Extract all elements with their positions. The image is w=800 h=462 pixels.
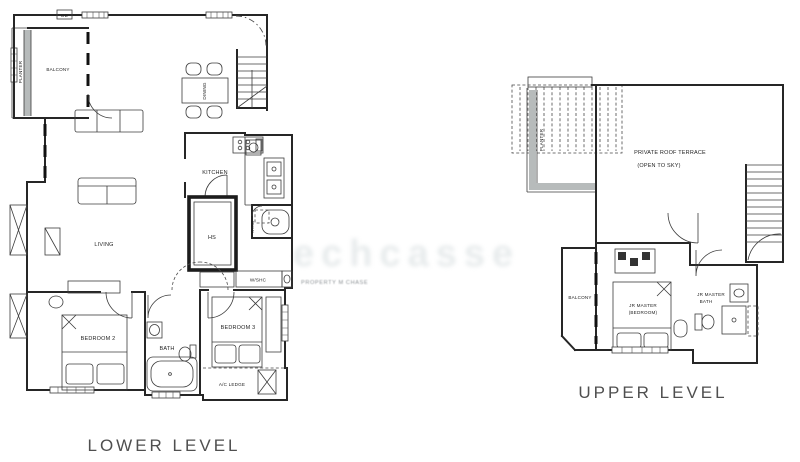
room-label-jrmaster-2: (BEDROOM) bbox=[629, 310, 658, 315]
room-label-dining: DINING bbox=[202, 82, 207, 100]
room-label-planter-upper: PLANTER bbox=[539, 128, 544, 151]
room-label-db: DB bbox=[61, 13, 68, 18]
dining-set: DINING bbox=[182, 63, 228, 118]
left-closets bbox=[10, 205, 27, 338]
terrace-door-arc bbox=[668, 213, 698, 243]
room-label-kitchen: KITCHEN bbox=[202, 170, 228, 176]
room-label-planter-lower: PLANTER bbox=[18, 60, 23, 83]
bedroom-2: BEDROOM 2 bbox=[49, 281, 132, 390]
hall-wardrobe: W/SHC bbox=[200, 271, 292, 287]
jr-master-bath: JR MASTER BATH bbox=[695, 284, 758, 336]
room-label-balcony-upper: BALCONY bbox=[568, 295, 591, 300]
caption-upper-level: UPPER LEVEL bbox=[578, 383, 727, 402]
room-label-living: LIVING bbox=[94, 242, 113, 248]
entrance-door-arc bbox=[236, 16, 266, 46]
room-label-bedroom3: BEDROOM 3 bbox=[221, 325, 256, 331]
balcony-upper: BALCONY bbox=[568, 252, 596, 344]
room-label-bath: BATH bbox=[159, 346, 174, 352]
household-shelter: HS bbox=[189, 197, 236, 270]
watermark-small-text: PROPERTY M CHASE bbox=[301, 280, 368, 286]
room-label-ac-ledge: A/C LEDGE bbox=[219, 382, 245, 387]
watermark: echcasse PROPERTY M CHASE bbox=[293, 233, 520, 286]
ac-ledge: A/C LEDGE bbox=[203, 368, 287, 394]
upper-staircase bbox=[746, 165, 783, 260]
room-label-terrace-2: (OPEN TO SKY) bbox=[637, 163, 680, 169]
wc bbox=[252, 206, 289, 234]
room-label-wshc: W/SHC bbox=[250, 278, 267, 283]
kitchen: KITCHEN bbox=[202, 137, 263, 197]
bedroom-3: BEDROOM 3 bbox=[208, 292, 281, 367]
room-label-hs: HS bbox=[208, 235, 216, 241]
upper-level-plan: PLANTER PRIVATE ROOF TERRACE (OPEN TO SK… bbox=[512, 77, 783, 402]
lower-level-plan: DB DINING KITCHEN bbox=[10, 10, 292, 455]
room-label-bedroom2: BEDROOM 2 bbox=[81, 336, 116, 342]
room-label-balcony-lower: BALCONY bbox=[46, 67, 69, 72]
caption-lower-level: LOWER LEVEL bbox=[88, 436, 241, 455]
room-label-jrbath-2: BATH bbox=[700, 299, 713, 304]
floorplan-canvas: echcasse PROPERTY M CHASE bbox=[0, 0, 800, 462]
watermark-large-text: echcasse bbox=[293, 233, 520, 275]
lower-staircase bbox=[237, 50, 267, 108]
room-label-jrmaster-1: JR MASTER bbox=[629, 303, 657, 308]
room-label-jrbath-1: JR MASTER bbox=[697, 292, 725, 297]
room-label-terrace-1: PRIVATE ROOF TERRACE bbox=[634, 150, 706, 156]
bath-lower: BATH bbox=[147, 295, 197, 391]
room-label-yard: YARD bbox=[250, 220, 255, 234]
upper-planter-pergola: PLANTER bbox=[512, 77, 622, 192]
